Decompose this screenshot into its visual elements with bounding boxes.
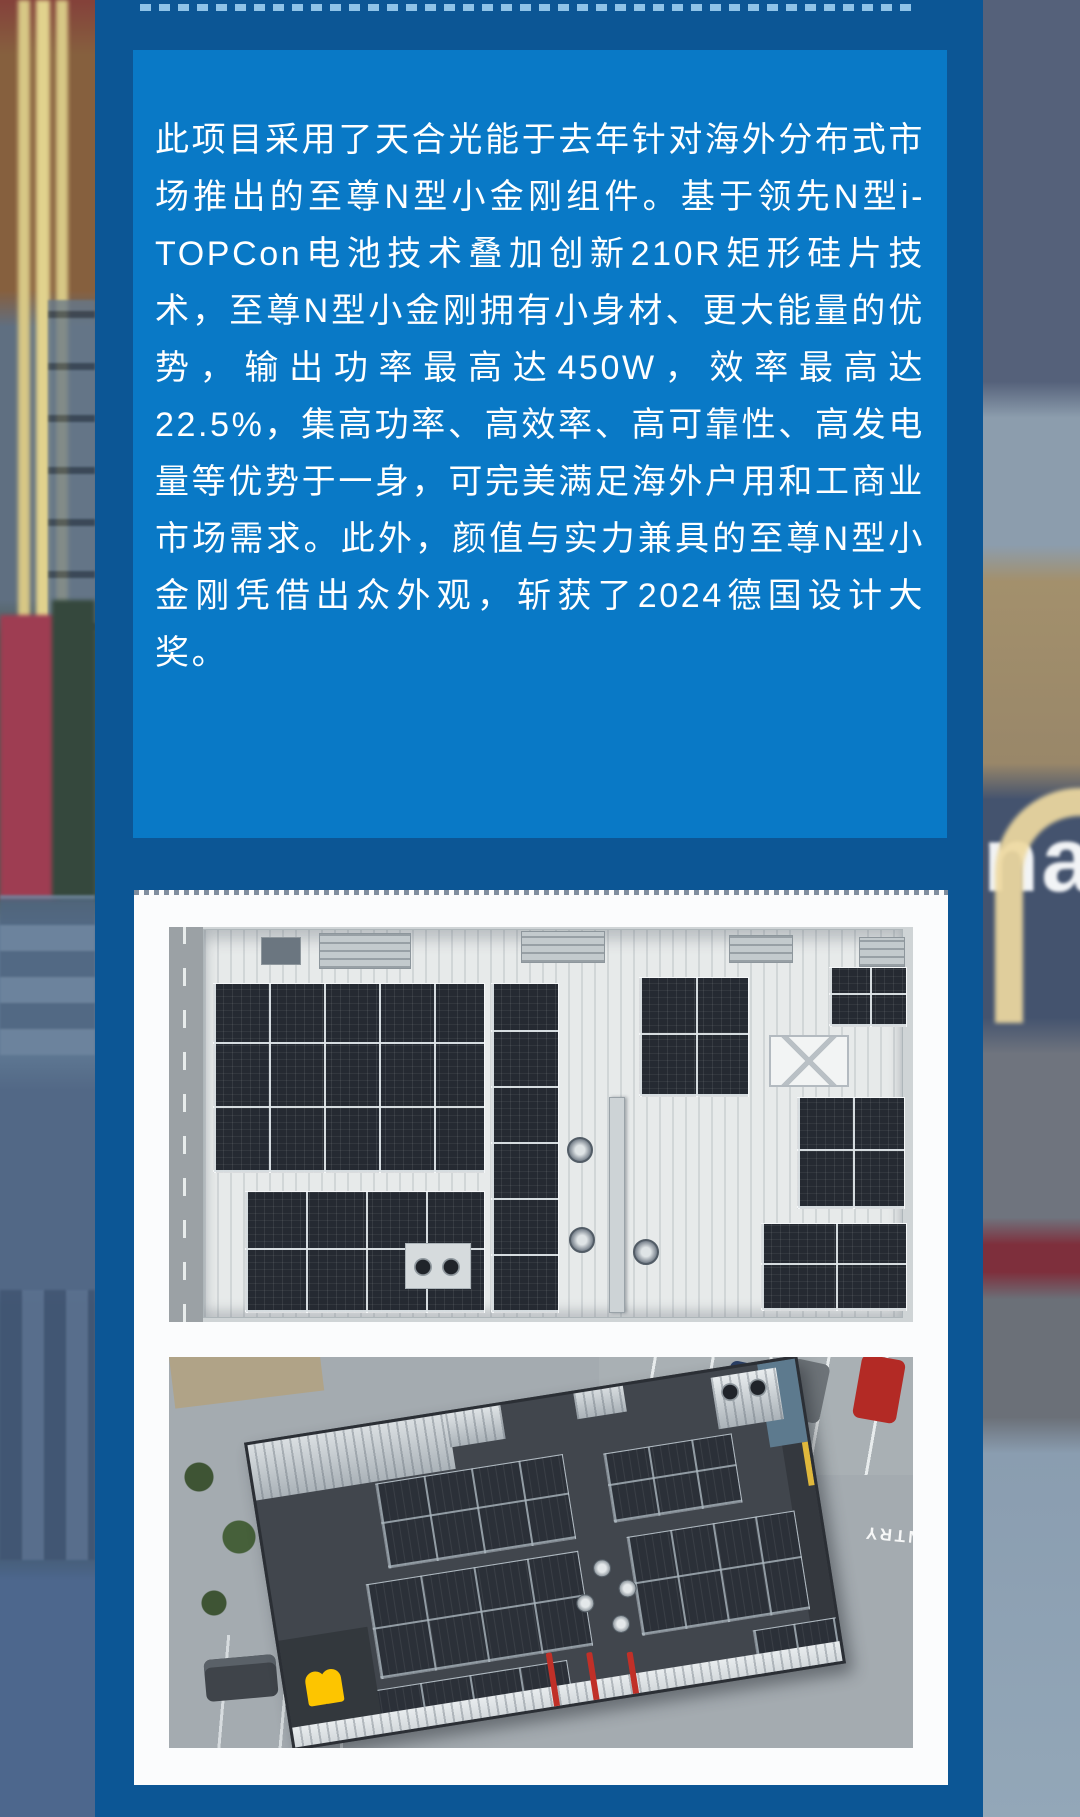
- solar-array: [639, 977, 749, 1097]
- article-paragraph: 此项目采用了天合光能于去年针对海外分布式市场推出的至尊N型小金刚组件。基于领先N…: [155, 112, 925, 682]
- fan-icon: [747, 1377, 768, 1398]
- road-strip: [169, 927, 203, 1322]
- restaurant-building: [244, 1357, 846, 1748]
- dashed-divider: [140, 4, 917, 11]
- rooftop-hvac-unit: [319, 933, 411, 969]
- parked-car-dark: [203, 1654, 278, 1702]
- article-card: 此项目采用了天合光能于去年针对海外分布式市场推出的至尊N型小金刚组件。基于领先N…: [133, 50, 947, 838]
- rooftop-hvac-unit: [859, 937, 905, 967]
- roof-vent: [567, 1137, 593, 1163]
- rooftop-unit: [711, 1368, 784, 1430]
- red-signage-fragment: [0, 615, 58, 900]
- building-windows-fragment: [48, 300, 95, 630]
- ac-unit: [405, 1243, 471, 1289]
- mcdonalds-arches-icon: [304, 1664, 353, 1706]
- entry-road-marking: ENTRY: [862, 1522, 913, 1548]
- rooftop-unit: [444, 1399, 506, 1447]
- photo-panel: ENTRY: [134, 890, 948, 1785]
- roof-vent: [569, 1227, 595, 1253]
- vent-housing: [261, 937, 301, 965]
- rooftop-hvac-unit: [521, 931, 605, 963]
- dotted-edge-decoration: [134, 890, 948, 895]
- solar-array: [603, 1433, 742, 1522]
- solar-array: [761, 1223, 907, 1311]
- shrub-fragment: [52, 600, 95, 900]
- rooftop-hvac-unit: [729, 935, 793, 963]
- road-dash-line: [183, 927, 186, 1322]
- background-photo-right-strip: na: [983, 0, 1080, 1817]
- roof-vent: [592, 1558, 613, 1579]
- solar-array: [366, 1551, 593, 1679]
- fan-icon: [720, 1382, 741, 1403]
- solar-array: [797, 1097, 905, 1209]
- photo-mcdonalds-aerial[interactable]: ENTRY: [169, 1357, 913, 1748]
- solar-array: [627, 1510, 811, 1635]
- solar-array: [213, 983, 485, 1173]
- roof-duct: [609, 1097, 625, 1313]
- background-photo-left-strip: [0, 0, 95, 1817]
- solar-array: [491, 983, 559, 1313]
- skylight: [769, 1035, 849, 1087]
- article-page: na 此项目采用了天合光能于去年针对海外分布式市场推出的至尊N型小金刚组件。基于…: [0, 0, 1080, 1817]
- content-column: 此项目采用了天合光能于去年针对海外分布式市场推出的至尊N型小金刚组件。基于领先N…: [95, 0, 983, 1817]
- building-pillars-fragment: [0, 1290, 95, 1560]
- roof-vent: [633, 1239, 659, 1265]
- solar-array: [829, 967, 907, 1027]
- fan-icon: [414, 1258, 432, 1276]
- fan-icon: [442, 1258, 460, 1276]
- roof-vent: [611, 1614, 632, 1635]
- photo-rooftop-topview[interactable]: [169, 927, 913, 1322]
- building-bands-fragment: [0, 895, 95, 1055]
